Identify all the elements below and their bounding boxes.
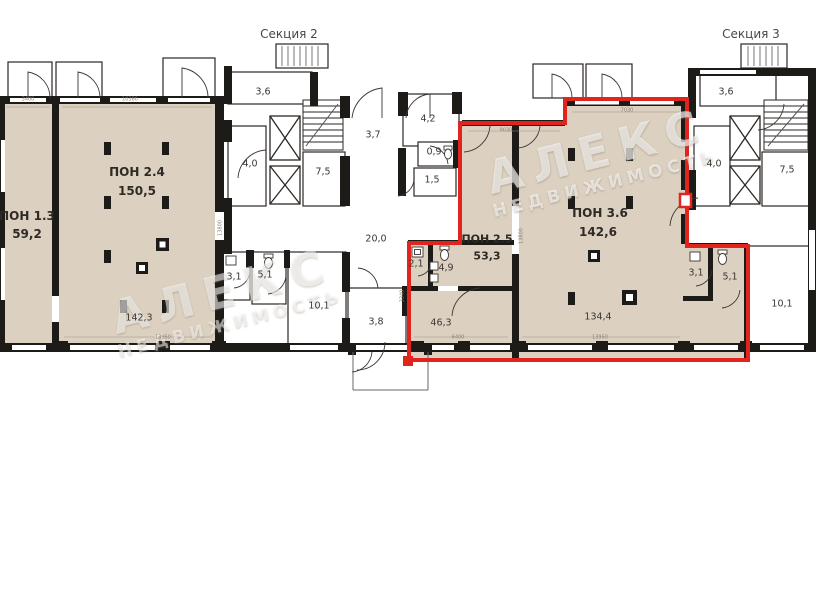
floor-plan-image: АЛЕКС НЕДВИЖИМОСТЬ АЛЕКС НЕДВИЖИМОСТЬ Се… [0,0,816,600]
